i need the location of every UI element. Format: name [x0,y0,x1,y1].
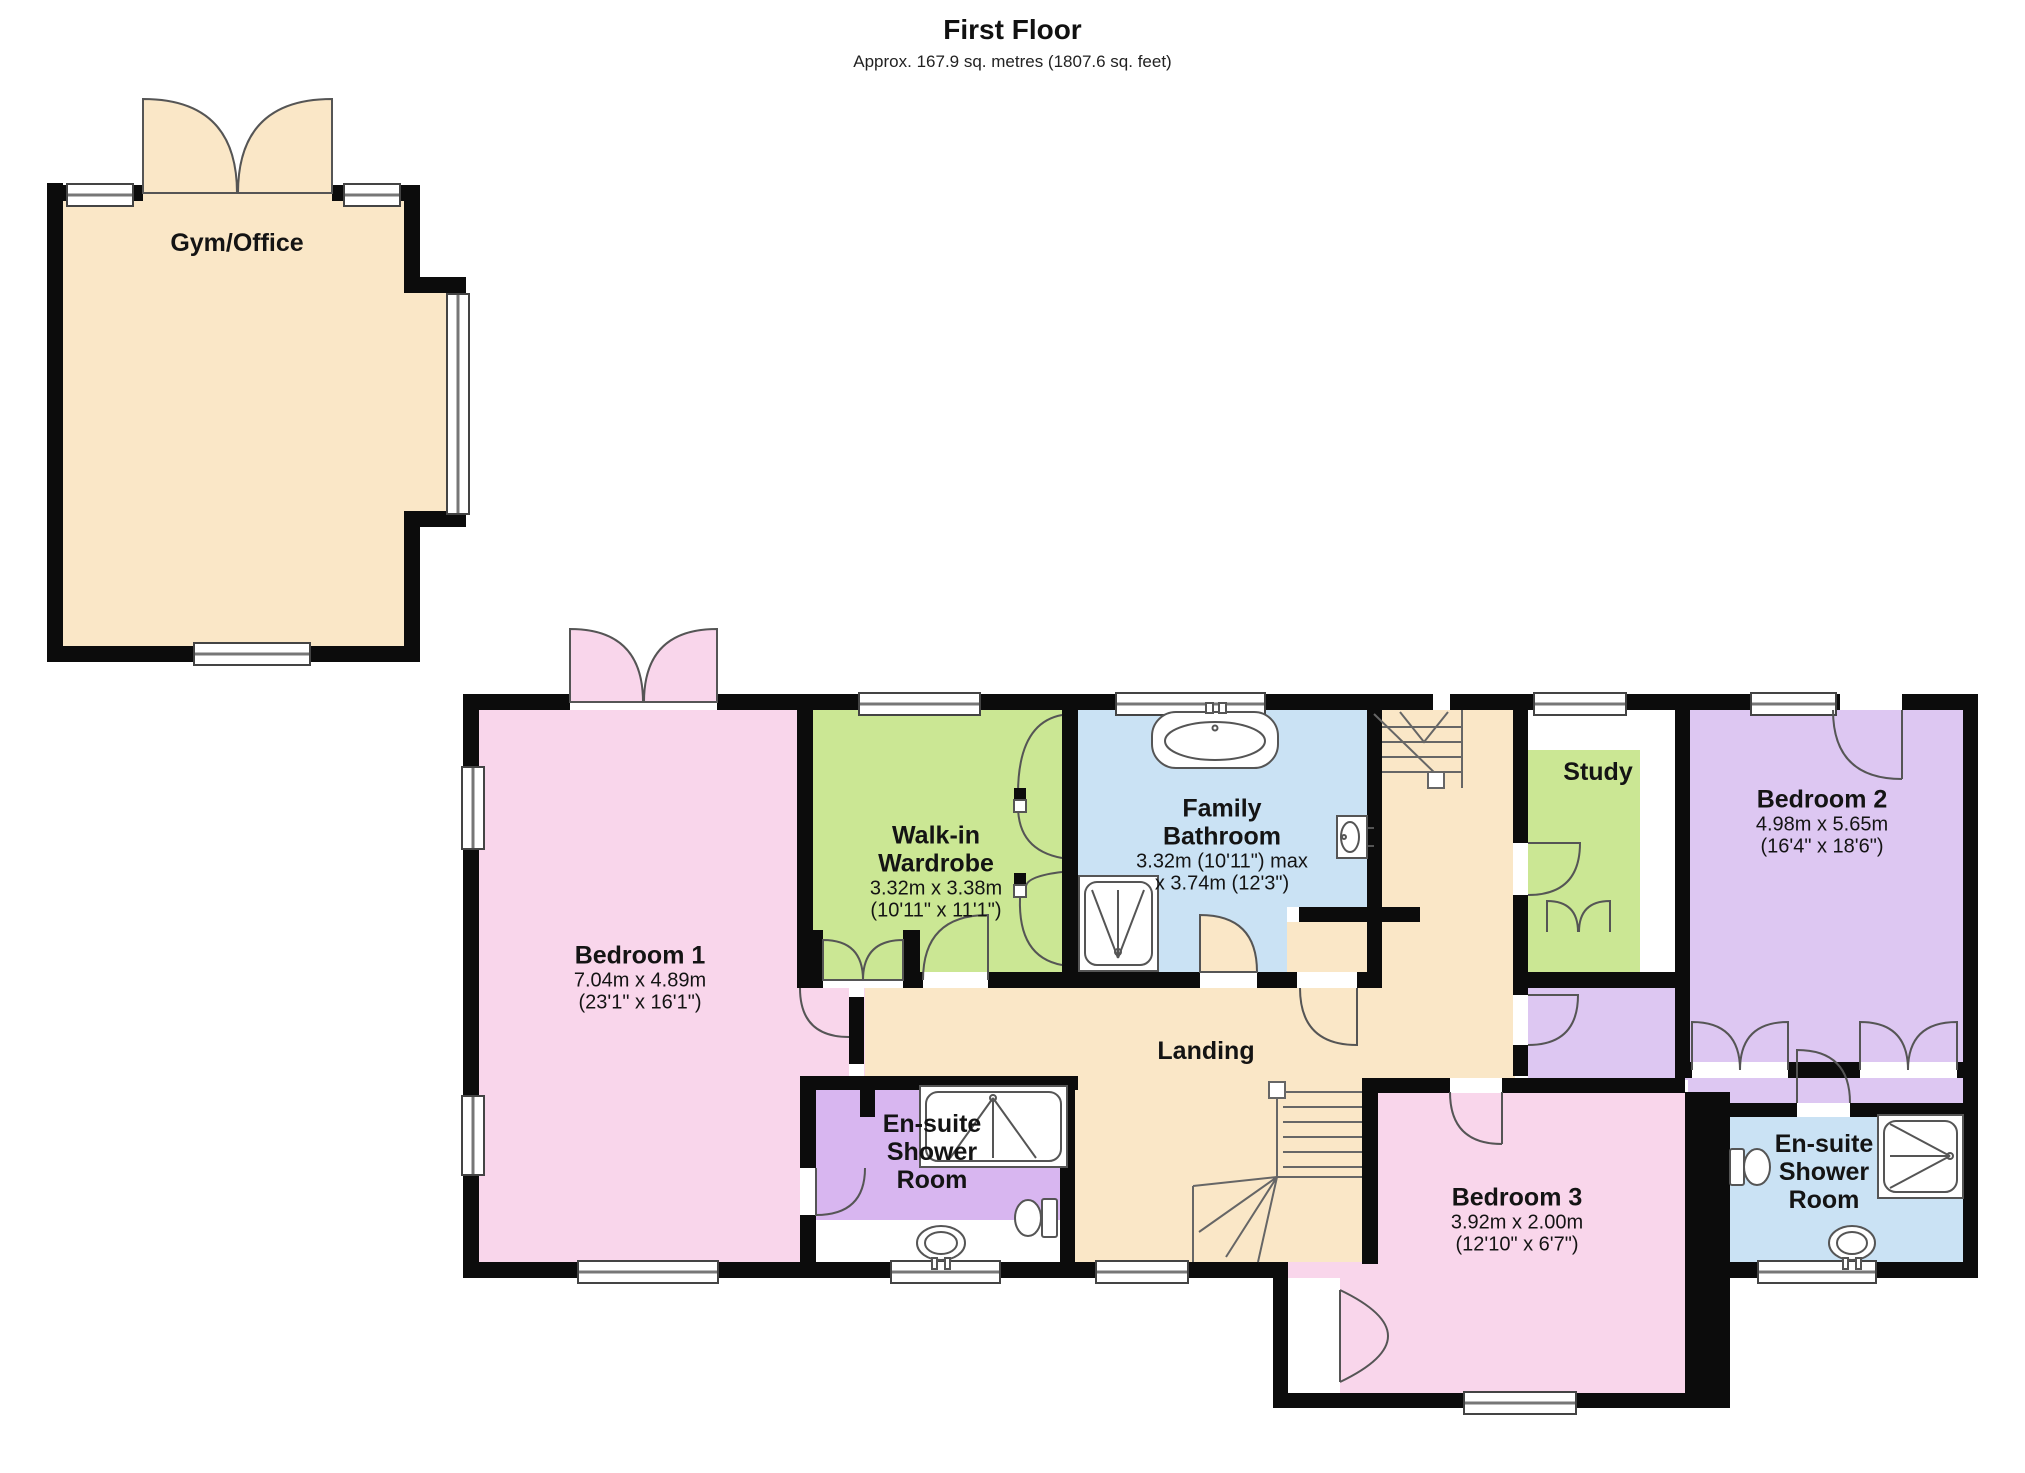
door-ensuite-2 [1797,1050,1850,1103]
door-bedroom-3 [1450,1092,1502,1144]
toilet-icon-ensuite-1 [1015,1199,1057,1237]
room-name: Gym/Office [170,229,303,257]
sink-icon-ensuite-2 [1829,1226,1875,1269]
room-name: Walk-in Wardrobe [861,822,1011,878]
room-label-bedroom-2: Bedroom 2 4.98m x 5.65m (16'4" x 18'6") [1756,786,1888,859]
door-cupboard [1300,988,1357,1045]
door-family-bathroom [1200,915,1257,972]
sink-icon-family-bathroom [1337,816,1374,858]
room-label-ensuite-1: En-suite Shower Room [867,1110,997,1194]
room-dims-imperial: (23'1" x 16'1") [574,992,706,1014]
double-doors-bedroom-3-closet [1340,1290,1388,1382]
room-name: Landing [1157,1037,1254,1065]
room-dims-metric: 3.32m x 3.38m [861,878,1011,900]
room-name: Family Bathroom [1152,795,1292,851]
double-doors-wardrobe [823,940,903,980]
room-dims-metric: 3.92m x 2.00m [1451,1212,1583,1234]
room-name: Bedroom 2 [1756,786,1888,814]
door-bedroom-2 [1833,710,1902,779]
plan-symbols-layer [0,0,2025,1473]
door-ensuite-1 [816,1168,865,1215]
sink-icon-ensuite-1 [917,1226,965,1269]
double-doors-study-closet [1547,901,1610,932]
door-wardrobe-entry [923,915,988,980]
french-doors-bedroom-1 [570,629,717,702]
room-dims-metric: 3.32m (10'11") max [1136,851,1308,873]
door-bedroom-1-entry [800,988,849,1037]
room-name: En-suite Shower Room [1759,1130,1889,1214]
room-dims-metric: 4.98m x 5.65m [1756,814,1888,836]
room-name: Bedroom 1 [574,942,706,970]
room-dims-imperial: (10'11" x 11'1") [861,900,1011,922]
room-name: En-suite Shower Room [867,1110,997,1194]
bathtub-icon [1152,703,1278,768]
floor-plan: First Floor Approx. 167.9 sq. metres (18… [0,0,2025,1473]
door-study [1528,843,1580,895]
room-label-study: Study [1563,758,1632,786]
stairs-winder [1193,1082,1362,1262]
bifold-doors-wardrobe [1014,715,1062,965]
room-name: Study [1563,758,1632,786]
french-doors-gym [143,99,332,193]
double-doors-bedroom-2 [1692,1022,1957,1070]
room-label-gym-office: Gym/Office [170,229,303,257]
room-label-landing: Landing [1157,1037,1254,1065]
room-label-bedroom-3: Bedroom 3 3.92m x 2.00m (12'10" x 6'7") [1451,1184,1583,1257]
room-label-ensuite-2: En-suite Shower Room [1759,1130,1889,1214]
room-name: Bedroom 3 [1451,1184,1583,1212]
room-dims-imperial: x 3.74m (12'3") [1136,873,1308,895]
room-dims-imperial: (16'4" x 18'6") [1756,836,1888,858]
room-dims-metric: 7.04m x 4.89m [574,970,706,992]
room-label-family-bathroom: Family Bathroom 3.32m (10'11") max x 3.7… [1136,795,1308,896]
shower-icon-ensuite-2 [1878,1115,1963,1198]
room-dims-imperial: (12'10" x 6'7") [1451,1234,1583,1256]
room-label-walk-in-wardrobe: Walk-in Wardrobe 3.32m x 3.38m (10'11" x… [861,822,1011,923]
door-dressing-corridor [1528,995,1578,1045]
room-label-bedroom-1: Bedroom 1 7.04m x 4.89m (23'1" x 16'1") [574,942,706,1015]
stairs-upper-flight [1374,710,1462,788]
